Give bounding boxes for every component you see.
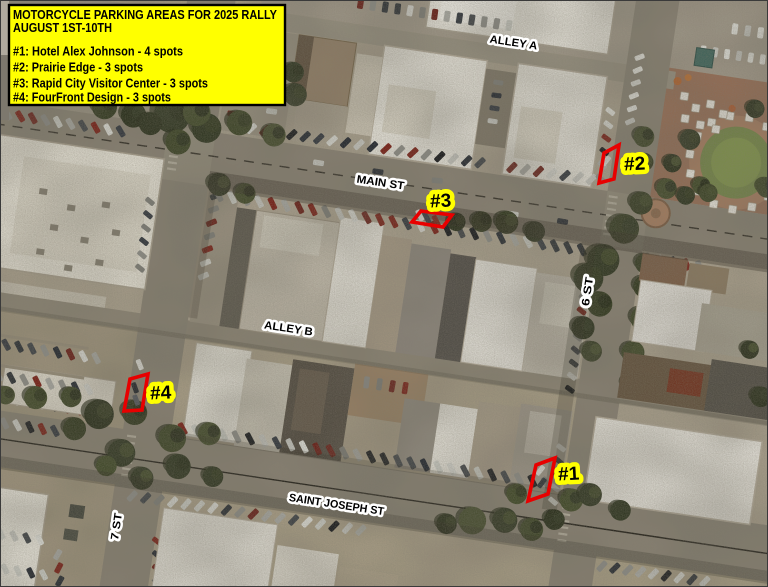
svg-text:#3: #3 xyxy=(430,190,452,212)
svg-text:#4: #4 xyxy=(150,382,173,404)
svg-text:#2: Prairie Edge - 3 spots: #2: Prairie Edge - 3 spots xyxy=(13,61,143,75)
svg-text:MOTORCYCLE PARKING AREAS FOR 2: MOTORCYCLE PARKING AREAS FOR 2025 RALLY xyxy=(13,8,278,22)
svg-text:#4: FourFront Design - 3 spots: #4: FourFront Design - 3 spots xyxy=(13,91,171,105)
svg-text:AUGUST 1ST-10TH: AUGUST 1ST-10TH xyxy=(13,21,112,35)
svg-text:#1: Hotel Alex Johnson - 4 spo: #1: Hotel Alex Johnson - 4 spots xyxy=(13,45,183,59)
svg-text:#1: #1 xyxy=(558,463,581,485)
svg-text:#2: #2 xyxy=(624,153,646,175)
svg-text:#3: Rapid City Visitor Center: #3: Rapid City Visitor Center - 3 spots xyxy=(13,77,208,91)
